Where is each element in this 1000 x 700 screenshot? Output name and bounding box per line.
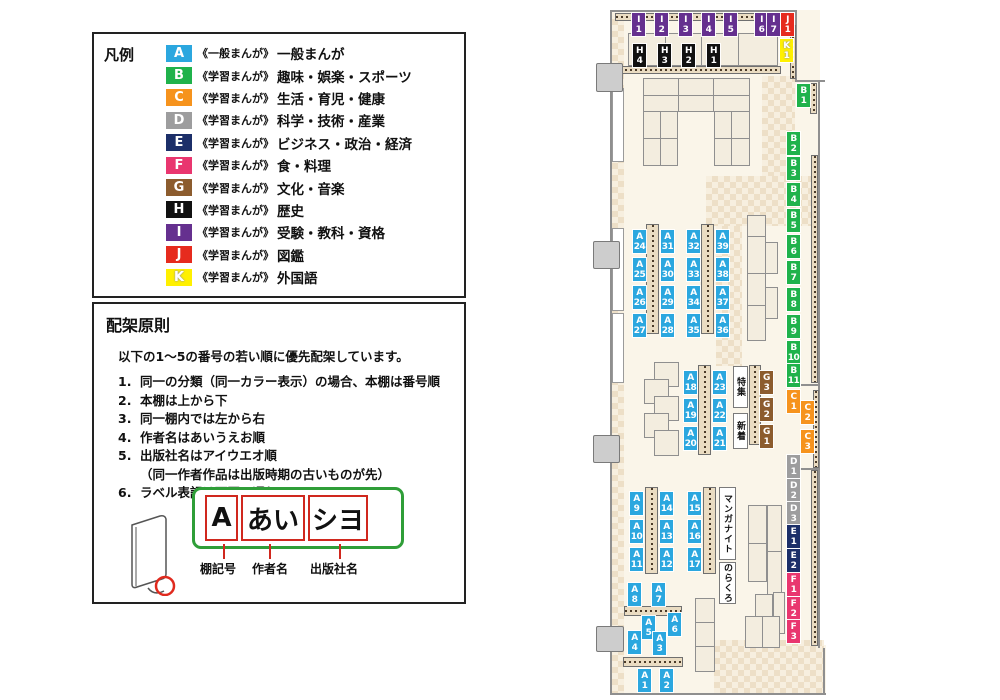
shelf-label-B1: B1 [797, 84, 810, 107]
tokushu-sign: 特集 [733, 366, 748, 408]
shelf-label-I7: I7 [767, 13, 780, 36]
shelf-table [678, 78, 714, 96]
legend-category: 《学習まんが》 [197, 224, 274, 240]
shelf-label-A4: A4 [628, 631, 641, 654]
shelf-label-A30: A30 [661, 258, 674, 281]
shelf-label-A29: A29 [661, 286, 674, 309]
shelf-label-A31: A31 [661, 230, 674, 253]
label-shelf-code: A [205, 495, 238, 541]
legend-chip-G: G [166, 179, 192, 196]
shelf-table [762, 616, 780, 648]
shelf-strip [698, 365, 711, 455]
shelf-label-A18: A18 [684, 371, 697, 394]
principles-panel: 配架原則 以下の1〜5の番号の若い順に優先配架しています。 1.同一の分類（同一… [92, 302, 466, 604]
legend-chip-J: J [166, 246, 192, 263]
shelf-label-A3: A3 [653, 632, 666, 655]
shelf-label-D2: D2 [787, 479, 800, 502]
shelf-table [767, 551, 782, 595]
shelf-label-A32: A32 [687, 230, 700, 253]
legend-chip-H: H [166, 201, 192, 218]
shelf-label-D1: D1 [787, 455, 800, 478]
legend-category: 《学習まんが》 [197, 135, 274, 151]
shelf-strip [810, 83, 817, 114]
legend-label: 外国語 [277, 267, 318, 287]
shelf-table [738, 33, 778, 66]
shelf-table [745, 616, 763, 648]
shelf-table [654, 430, 679, 456]
legend-item-D: D《学習まんが》科学・技術・産業 [166, 109, 458, 131]
shelf-label-A22: A22 [713, 399, 726, 422]
shelf-label-G2: G2 [760, 398, 773, 421]
legend-item-G: G《学習まんが》文化・音楽 [166, 176, 458, 198]
wall-stub [801, 384, 820, 386]
shelf-label-A36: A36 [716, 314, 729, 337]
legend-chip-K: K [166, 269, 192, 286]
legend-category: 《学習まんが》 [197, 112, 274, 128]
manga-night-sign: マンガナイト [719, 487, 736, 560]
shelf-label-A19: A19 [684, 399, 697, 422]
principles-rules: 1.同一の分類（同一カラー表示）の場合、本棚は番号順2.本棚は上から下3.同一棚… [94, 373, 464, 503]
legend-label: 食・料理 [277, 155, 331, 175]
shelf-table [695, 646, 715, 672]
shelf-label-A21: A21 [713, 427, 726, 450]
legend-list: A《一般まんが》一般まんがB《学習まんが》趣味・娯楽・スポーツC《学習まんが》生… [166, 42, 458, 288]
shelf-strip [646, 224, 659, 334]
legend-category: 《学習まんが》 [197, 68, 274, 84]
shelf-label-A24: A24 [633, 230, 646, 253]
wall-top [610, 10, 797, 12]
legend-label: 生活・育児・健康 [277, 88, 385, 108]
leader-line [223, 544, 225, 559]
shelf-table [748, 505, 767, 544]
legend-label: 趣味・娯楽・スポーツ [277, 66, 412, 86]
shelf-strip [645, 487, 658, 574]
shelf-table [731, 111, 750, 139]
principles-intro: 以下の1〜5の番号の若い順に優先配架しています。 [118, 346, 464, 365]
legend-chip-B: B [166, 67, 192, 84]
shelf-label-F2: F2 [787, 597, 800, 620]
legend-label: 一般まんが [277, 43, 345, 63]
legend-category: 《学習まんが》 [197, 180, 274, 196]
legend-label: 図鑑 [277, 245, 304, 265]
shelf-label-H1: H1 [707, 44, 720, 67]
shelf-label-A1: A1 [638, 669, 651, 692]
shelf-label-I2: I2 [655, 13, 668, 36]
book-icon [118, 510, 182, 600]
shelf-label-B3: B3 [787, 157, 800, 180]
shelf-label-A13: A13 [660, 520, 673, 543]
shelf-table [765, 242, 778, 274]
shelf-table [765, 287, 778, 319]
shelf-label-A11: A11 [630, 548, 643, 571]
wall-shelf-unit [612, 313, 624, 383]
shelf-label-B4: B4 [787, 183, 800, 206]
leader-line [339, 544, 341, 559]
legend-chip-F: F [166, 157, 192, 174]
shelf-table [767, 505, 782, 552]
shelf-label-A26: A26 [633, 286, 646, 309]
shelf-label-A12: A12 [660, 548, 673, 571]
shelf-label-A38: A38 [716, 258, 729, 281]
legend-label: 科学・技術・産業 [277, 110, 385, 130]
legend-category: 《学習まんが》 [197, 157, 274, 173]
shelf-label-A33: A33 [687, 258, 700, 281]
shelf-strip [811, 470, 818, 646]
door [596, 626, 624, 652]
shelf-table [678, 95, 714, 112]
shelf-label-F1: F1 [787, 573, 800, 596]
legend-item-C: C《学習まんが》生活・育児・健康 [166, 87, 458, 109]
shelf-label-K1: K1 [780, 39, 793, 62]
floor-map-poster: 凡例 A《一般まんが》一般まんがB《学習まんが》趣味・娯楽・スポーツC《学習まん… [0, 0, 1000, 700]
wall-bottom [610, 693, 826, 695]
rule-1: 1.同一の分類（同一カラー表示）の場合、本棚は番号順 [118, 373, 464, 392]
shelf-label-A17: A17 [688, 548, 701, 571]
shelf-strip [701, 224, 714, 334]
legend-category: 《学習まんが》 [197, 202, 274, 218]
shelf-table [660, 138, 678, 166]
shelf-strip [623, 657, 683, 667]
shelf-table [747, 215, 766, 237]
shelf-label-I1: I1 [632, 13, 645, 36]
shelf-table [695, 622, 715, 647]
rule-5: 5.出版社名はアイウエオ順 （同一作者作品は出版時期の古いものが先） [118, 447, 464, 484]
shelf-table [660, 111, 678, 139]
legend-label: 歴史 [277, 200, 304, 220]
shelf-label-B9: B9 [787, 315, 800, 338]
shelf-label-G1: G1 [760, 425, 773, 448]
shelf-label-A25: A25 [633, 258, 646, 281]
rule-2: 2.本棚は上から下 [118, 392, 464, 411]
shelf-label-H3: H3 [658, 44, 671, 67]
shelf-label-G3: G3 [760, 371, 773, 394]
shelf-label-C3: C3 [801, 430, 814, 453]
legend-chip-C: C [166, 89, 192, 106]
legend-chip-A: A [166, 45, 192, 62]
legend-label: 文化・音楽 [277, 178, 345, 198]
shelf-table [714, 138, 732, 166]
shelf-label-A9: A9 [630, 492, 643, 515]
shelf-label-A28: A28 [661, 314, 674, 337]
shelf-label-H2: H2 [682, 44, 695, 67]
shelf-label-A8: A8 [628, 583, 641, 606]
shelf-table [731, 138, 750, 166]
legend-label: 受験・教科・資格 [277, 222, 385, 242]
shelf-table [643, 95, 679, 112]
shelf-label-H4: H4 [633, 44, 646, 67]
shelf-table [714, 111, 732, 139]
legend-item-H: H《学習まんが》歴史 [166, 199, 458, 221]
wall-shelf-unit [612, 88, 624, 162]
wall-right [818, 80, 820, 648]
shelf-table [695, 598, 715, 623]
shelf-label-A23: A23 [713, 371, 726, 394]
legend-item-E: E《学習まんが》ビジネス・政治・経済 [166, 132, 458, 154]
shelf-label-A7: A7 [652, 583, 665, 606]
wall-jog [795, 80, 825, 82]
legend-panel: 凡例 A《一般まんが》一般まんがB《学習まんが》趣味・娯楽・スポーツC《学習まん… [92, 32, 466, 298]
shelf-strip [811, 155, 818, 383]
wall-right-lower [823, 648, 825, 695]
shelf-table [747, 305, 766, 341]
norakuro-sign: のらくろ [719, 562, 736, 604]
shelf-table [643, 111, 661, 139]
shelf-label-A34: A34 [687, 286, 700, 309]
shelf-label-I4: I4 [702, 13, 715, 36]
leader-line [269, 544, 271, 559]
caption-publisher: 出版社名 [310, 560, 358, 577]
shinchaku-sign: 新着 [733, 413, 748, 449]
shelf-label-A37: A37 [716, 286, 729, 309]
principles-title: 配架原則 [106, 312, 464, 336]
label-diagram: A あい シヨ [192, 487, 404, 549]
legend-title: 凡例 [104, 42, 166, 288]
legend-category: 《学習まんが》 [197, 269, 274, 285]
shelf-label-J1: J1 [781, 13, 794, 36]
shelf-label-A35: A35 [687, 314, 700, 337]
legend-category: 《学習まんが》 [197, 247, 274, 263]
label-author: あい [241, 495, 305, 541]
shelf-table [713, 78, 750, 96]
shelf-label-F3: F3 [787, 620, 800, 643]
shelf-label-I5: I5 [724, 13, 737, 36]
label-publisher: シヨ [308, 495, 368, 541]
legend-label: ビジネス・政治・経済 [277, 133, 412, 153]
legend-item-B: B《学習まんが》趣味・娯楽・スポーツ [166, 64, 458, 86]
legend-item-K: K《学習まんが》外国語 [166, 266, 458, 288]
shelf-label-A27: A27 [633, 314, 646, 337]
shelf-label-A16: A16 [688, 520, 701, 543]
shelf-table [748, 543, 767, 582]
shelf-table [643, 78, 679, 96]
door [593, 435, 620, 463]
legend-item-F: F《学習まんが》食・料理 [166, 154, 458, 176]
shelf-table [747, 273, 766, 306]
shelf-label-I3: I3 [679, 13, 692, 36]
shelf-label-E1: E1 [787, 525, 800, 548]
shelf-label-A14: A14 [660, 492, 673, 515]
legend-item-I: I《学習まんが》受験・教科・資格 [166, 221, 458, 243]
shelf-table [713, 95, 750, 112]
legend-category: 《学習まんが》 [197, 90, 274, 106]
shelf-label-B6: B6 [787, 235, 800, 258]
shelf-label-C2: C2 [801, 401, 814, 424]
legend-item-A: A《一般まんが》一般まんが [166, 42, 458, 64]
shelf-label-B8: B8 [787, 288, 800, 311]
shelf-label-B10: B10 [787, 341, 800, 364]
legend-chip-I: I [166, 224, 192, 241]
legend-chip-E: E [166, 134, 192, 151]
door [593, 241, 620, 269]
legend-item-J: J《学習まんが》図鑑 [166, 244, 458, 266]
rule-4: 4.作者名はあいうえお順 [118, 429, 464, 448]
legend-category: 《一般まんが》 [197, 45, 274, 61]
shelf-label-E2: E2 [787, 549, 800, 572]
caption-author: 作者名 [252, 560, 288, 577]
shelf-label-A2: A2 [660, 669, 673, 692]
shelf-label-A10: A10 [630, 520, 643, 543]
legend-chip-D: D [166, 112, 192, 129]
shelf-label-C1: C1 [787, 390, 800, 413]
door [596, 63, 623, 92]
shelf-table [747, 236, 766, 274]
shelf-label-B11: B11 [787, 364, 800, 387]
shelf-strip [703, 487, 716, 574]
shelf-table [643, 138, 661, 166]
shelf-label-A15: A15 [688, 492, 701, 515]
shelf-label-A39: A39 [716, 230, 729, 253]
shelf-label-B2: B2 [787, 132, 800, 155]
shelf-label-D3: D3 [787, 502, 800, 525]
caption-shelf-code: 棚記号 [200, 560, 236, 577]
rule-3: 3.同一棚内では左から右 [118, 410, 464, 429]
shelf-label-B5: B5 [787, 209, 800, 232]
shelf-label-B7: B7 [787, 261, 800, 284]
shelf-label-A6: A6 [668, 613, 681, 636]
shelf-strip [609, 66, 781, 74]
shelf-label-A20: A20 [684, 427, 697, 450]
